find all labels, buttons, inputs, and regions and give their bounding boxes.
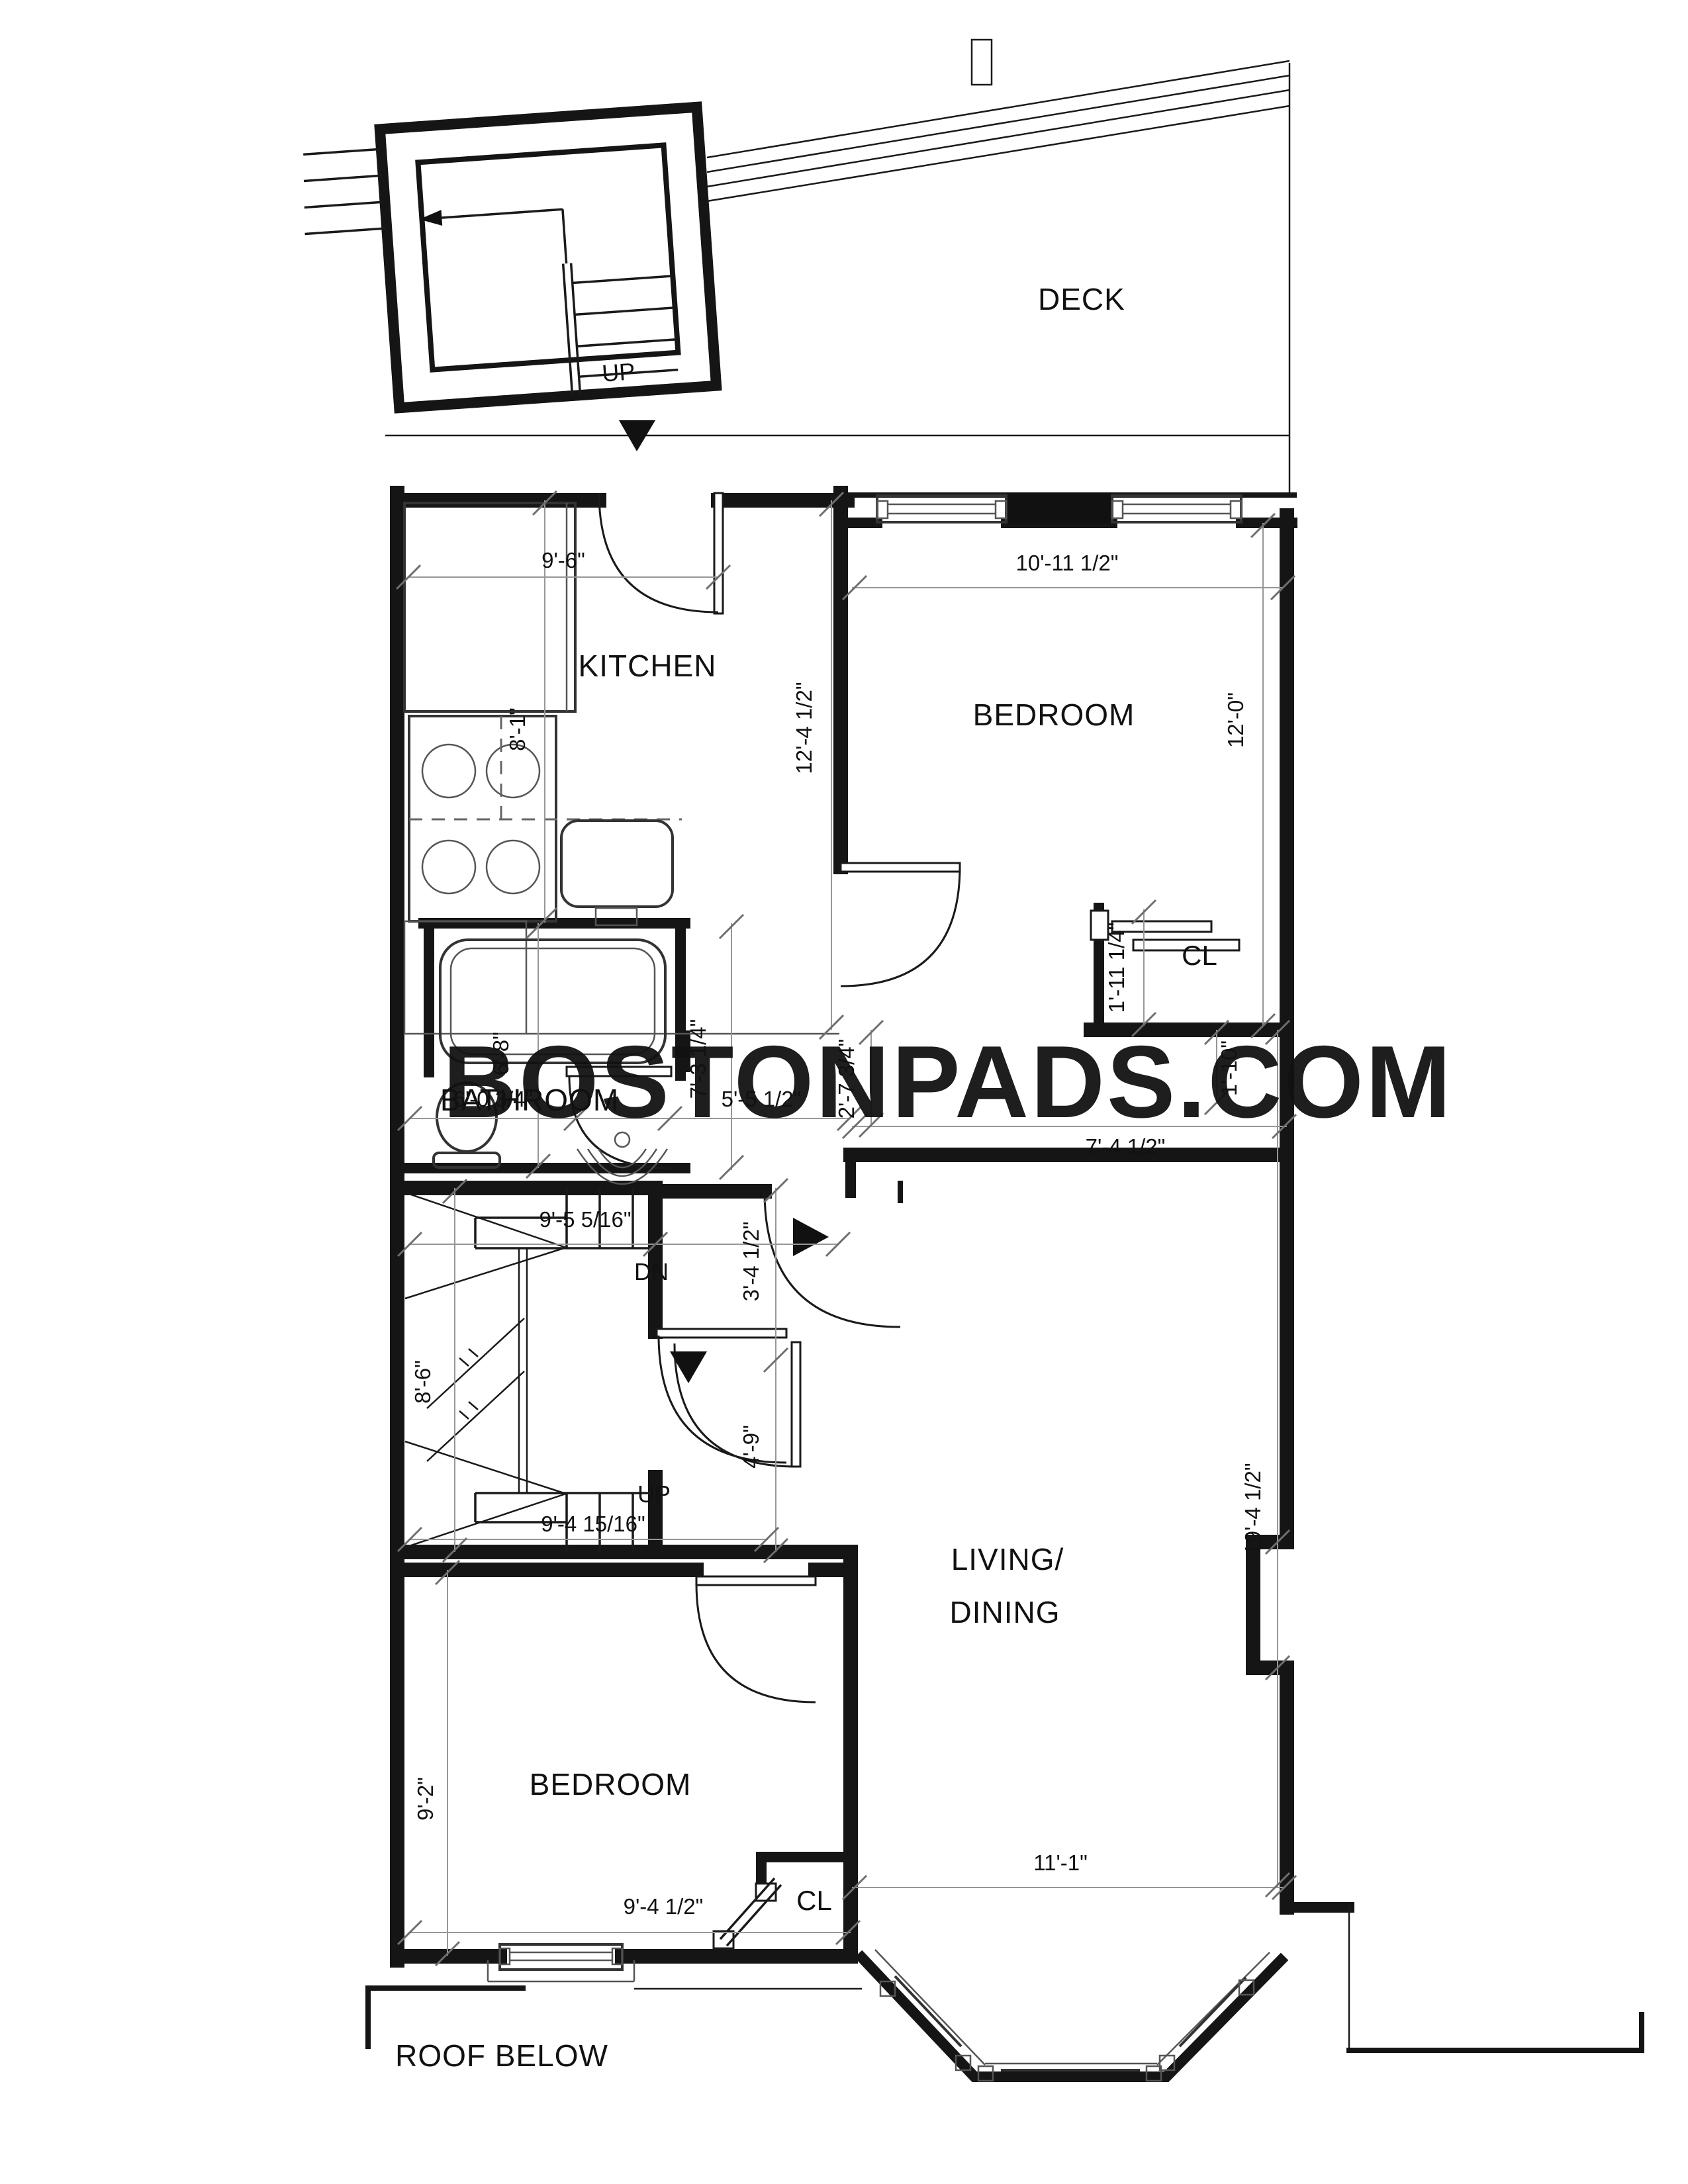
middle-stairs xyxy=(405,1188,655,1552)
kitchen-counter-upper xyxy=(404,503,575,711)
watermark: BOSTONPADS.COM xyxy=(443,1024,1453,1139)
floorplan-page: UP DECK xyxy=(0,0,1688,2184)
entry-door-deck xyxy=(599,493,723,614)
burner-icon xyxy=(487,745,539,797)
stair-up-label: UP xyxy=(601,357,636,387)
dim-bedroom2-width: 9'-4 1/2" xyxy=(624,1894,704,1919)
kitchen-cabinet-lower xyxy=(404,921,526,1034)
dim-kitchen-width: 9'-6" xyxy=(541,548,585,572)
dim-stair-top-width: 9'-5 5/16" xyxy=(539,1207,631,1232)
dim-corridor-upper: 3'-4 1/2" xyxy=(739,1222,763,1302)
bedroom2-window xyxy=(488,1944,634,1981)
floorplan-drawing: UP DECK xyxy=(0,0,1688,2184)
stair-dn-label: DN xyxy=(634,1258,669,1285)
kitchen-fixtures xyxy=(404,503,839,1034)
dim-bedroom1-depth: 12'-0" xyxy=(1223,692,1248,748)
kitchen-label: KITCHEN xyxy=(579,649,717,683)
deck-stairwell: UP xyxy=(298,107,716,414)
closet1-label: CL xyxy=(1182,940,1217,971)
bedroom1-door xyxy=(841,863,960,986)
dim-kitchen-wall: 12'-4 1/2" xyxy=(792,682,816,774)
dim-bedroom1-width: 10'-11 1/2" xyxy=(1015,551,1118,575)
burner-icon xyxy=(422,841,475,893)
bay-window xyxy=(862,1950,1281,2081)
apartment-entry-door xyxy=(765,1191,900,1327)
burner-icon xyxy=(487,841,539,893)
roof-edges xyxy=(368,1907,1642,2050)
railing-lines xyxy=(707,61,1289,201)
dim-stair-run: 8'-6" xyxy=(410,1360,435,1404)
dim-living-width: 11'-1" xyxy=(1033,1850,1088,1875)
roof-edge-right xyxy=(1349,2015,1642,2050)
stairwell-inner-wall xyxy=(418,145,678,369)
bedroom2-label: BEDROOM xyxy=(530,1767,692,1801)
closet2-label: CL xyxy=(796,1885,832,1916)
right-wall xyxy=(1253,516,1287,1907)
bedroom1-window-1 xyxy=(877,496,1006,522)
bedroom1-label: BEDROOM xyxy=(973,698,1135,732)
dim-bedroom2-depth: 9'-2" xyxy=(413,1777,438,1821)
kitchen-sink xyxy=(561,821,673,907)
dim-kitchen-depth: 8'-1" xyxy=(505,707,530,751)
stair-stringer-mid xyxy=(519,1248,527,1493)
stair-direction-line xyxy=(442,209,566,272)
deck-railing xyxy=(385,40,1289,493)
dim-living-depth: 19'-4 1/2" xyxy=(1241,1463,1265,1555)
dim-stair-bottom-width: 9'-4 15/16" xyxy=(541,1512,645,1536)
bedroom2-door xyxy=(696,1576,816,1702)
stair-up-mid-label: UP xyxy=(637,1480,671,1508)
railing-post xyxy=(972,40,992,85)
deck-label: DECK xyxy=(1038,282,1125,316)
roof-below-label: ROOF BELOW xyxy=(395,2038,608,2073)
living-label-line2: DINING xyxy=(950,1595,1060,1629)
railing-hatch xyxy=(299,149,385,234)
chimney-pier xyxy=(1006,492,1112,524)
living-label-line1: LIVING/ xyxy=(951,1542,1064,1576)
break-marks xyxy=(427,1318,524,1461)
entry-marker-right-icon xyxy=(793,1218,829,1256)
stair-door-upper xyxy=(657,1329,786,1463)
dim-closet1-depth: 1'-11 1/4" xyxy=(1104,923,1129,1013)
roof-edge-left xyxy=(368,1988,523,2046)
bedroom1-window-2 xyxy=(1112,496,1241,522)
dim-corridor-lower: 4'-9" xyxy=(739,1425,763,1469)
burner-icon xyxy=(422,745,475,797)
